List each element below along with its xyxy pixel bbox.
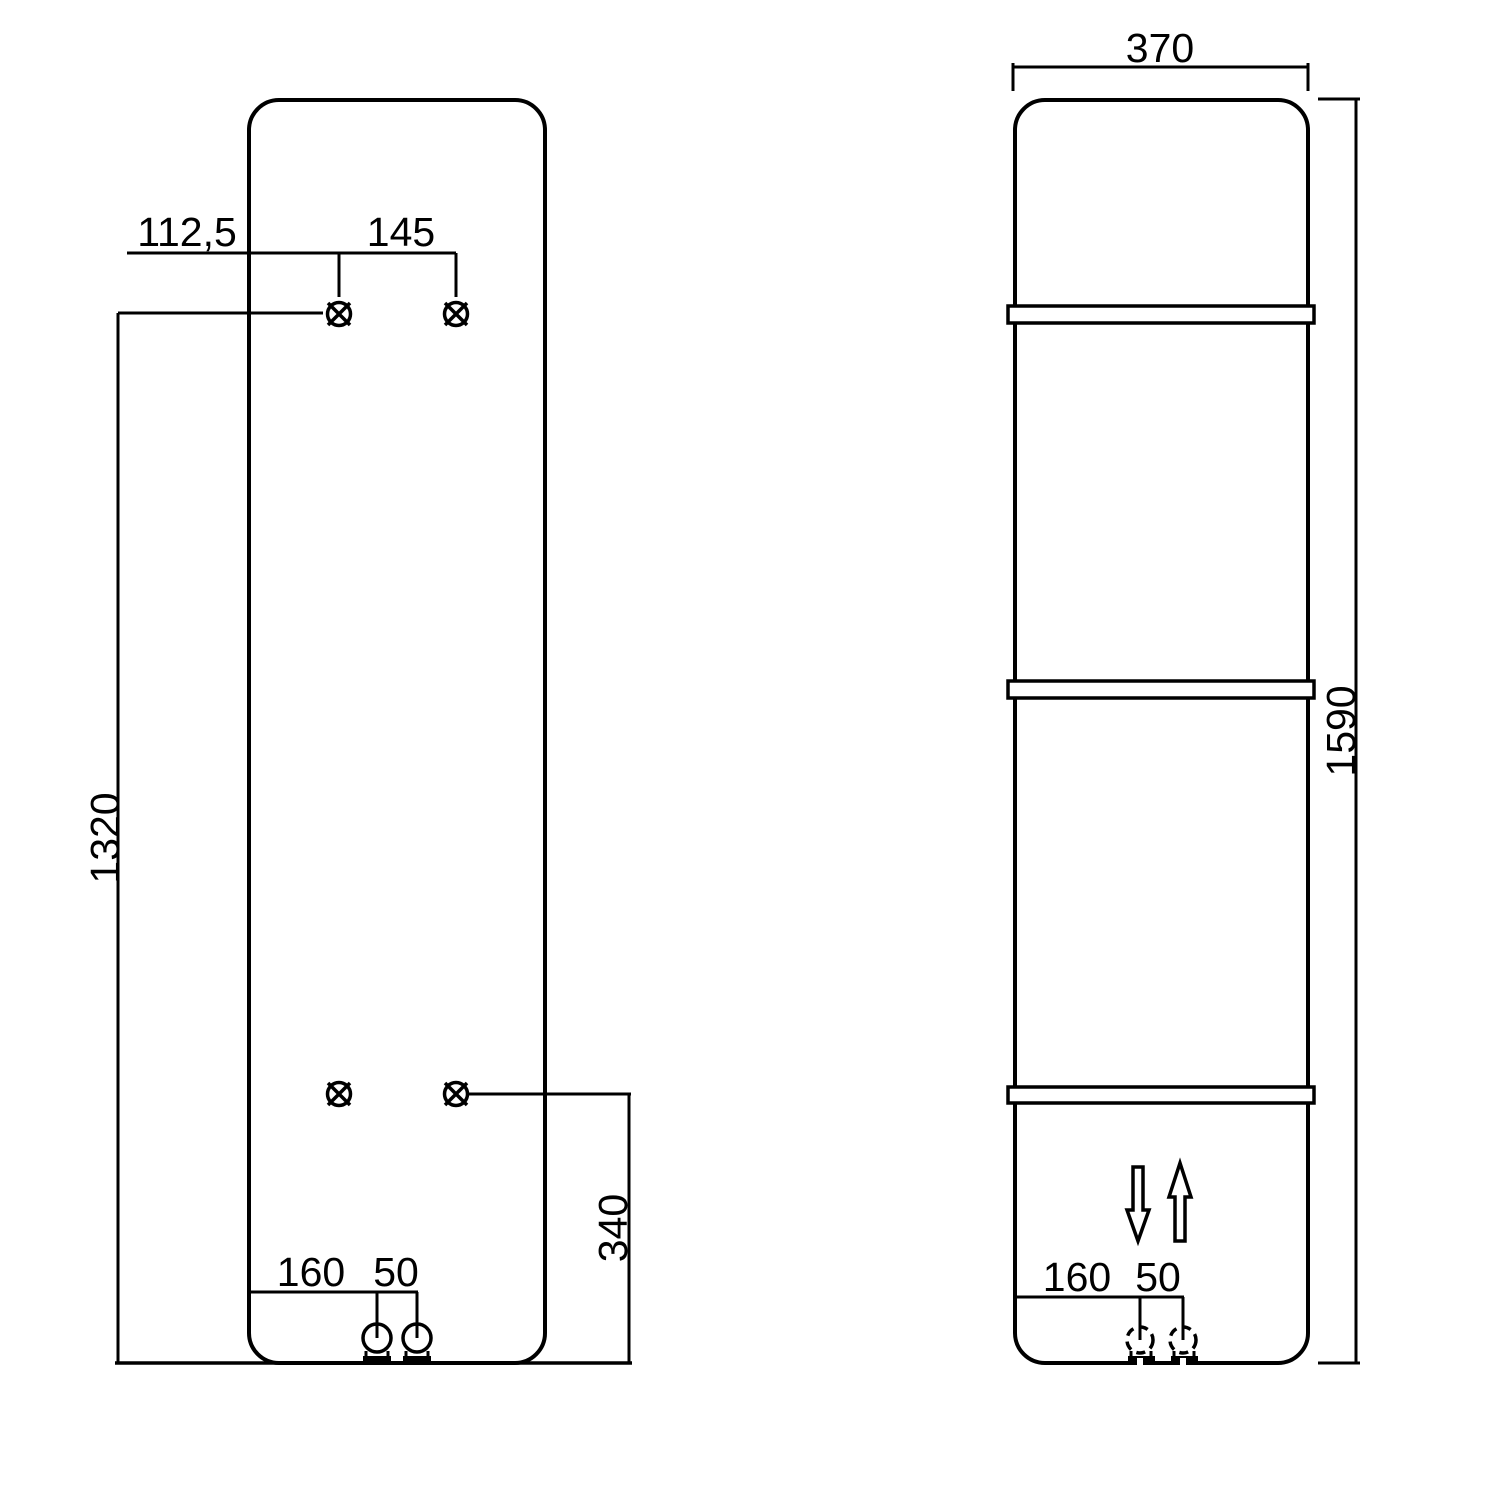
- dim-label-holes-bottom: 1320: [82, 792, 128, 883]
- towel-bar: [1008, 306, 1314, 323]
- pipe-stub-notch: [1137, 1358, 1143, 1365]
- dim-label-pipe-spacing: 50: [1135, 1254, 1181, 1300]
- radiator-drawing-svg: 112,5 145 1320 340 160 50: [0, 0, 1500, 1500]
- dimension-front-width: 370: [1013, 25, 1308, 91]
- dim-label-hole-offset: 112,5: [137, 209, 237, 255]
- dim-label-width: 370: [1126, 25, 1194, 71]
- towel-bar: [1008, 1087, 1314, 1103]
- dim-label-pipe-offset: 160: [277, 1249, 345, 1295]
- technical-drawing-canvas: 112,5 145 1320 340 160 50: [0, 0, 1500, 1500]
- pipe-stub-notch: [1180, 1358, 1186, 1365]
- dimension-front-height: 1590: [1318, 99, 1364, 1363]
- dim-label-height: 1590: [1318, 685, 1364, 776]
- dim-label-pipe-offset: 160: [1043, 1254, 1111, 1300]
- towel-bar: [1008, 681, 1314, 698]
- dim-label-pipe-spacing: 50: [373, 1249, 419, 1295]
- dim-label-lower-holes-bottom: 340: [590, 1194, 636, 1262]
- rear-view: 112,5 145 1320 340 160 50: [82, 100, 636, 1364]
- front-panel-outline: [1015, 100, 1308, 1363]
- dim-label-hole-spacing: 145: [367, 209, 435, 255]
- rear-panel-outline: [249, 100, 545, 1363]
- front-view: 370 1590 160 50: [1008, 25, 1364, 1365]
